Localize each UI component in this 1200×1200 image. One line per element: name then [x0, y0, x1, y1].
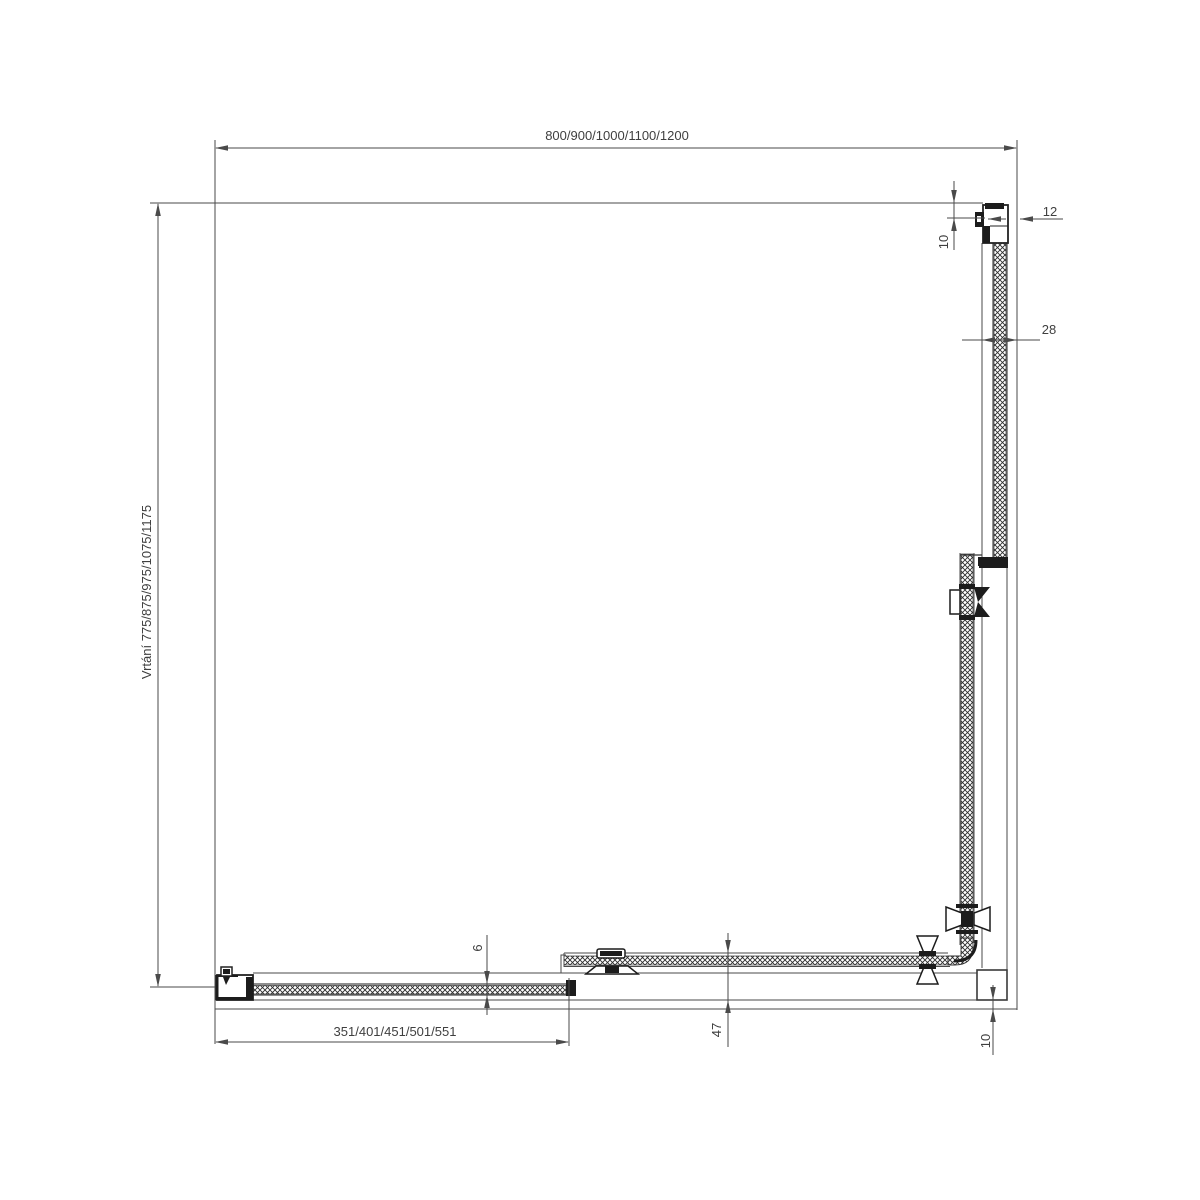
wall-profile-top-right: [975, 203, 1008, 243]
dimension-arrows: [155, 145, 1033, 1045]
door-top-bracket: [978, 557, 1008, 566]
fixed-glass-right: [994, 240, 1006, 564]
enclosure-outline: [150, 140, 1017, 1044]
dimension-lines: [150, 148, 1063, 1055]
dim-bottom-fixed-label: 351/401/451/501/551: [295, 1024, 495, 1040]
profile-right-bar: [246, 977, 253, 999]
dim-glass-thickness-label: 6: [470, 933, 486, 963]
profile-inner-block: [983, 226, 990, 243]
technical-drawing-canvas: 800/900/1000/1100/1200 Vrtání 775/875/97…: [0, 0, 1200, 1200]
door-glass-vertical: [961, 554, 973, 940]
dim-top-width-label: 800/900/1000/1100/1200: [467, 128, 767, 144]
fixed-panel-bottom: [253, 980, 576, 996]
sliding-door-horizontal: [564, 938, 976, 967]
dim-profile-depth-label: 12: [1035, 204, 1065, 220]
fixed-glass-bottom: [253, 986, 566, 995]
dim-door-edge-label: 47: [709, 1015, 725, 1045]
drawing-linework: [0, 0, 1200, 1200]
dim-panel-width-label: 28: [1034, 322, 1064, 338]
dim-top-offset-label: 10: [936, 227, 952, 257]
profile-serration: [985, 203, 1004, 209]
dim-bottom-offset-label: 10: [978, 1026, 994, 1056]
fixed-panel-right: [979, 238, 1008, 568]
corner-block: [977, 970, 1007, 1000]
wall-profile-bottom-left: [216, 967, 253, 1000]
dim-left-drilling-label: Vrtání 775/875/975/1075/1175: [139, 472, 155, 712]
fixed-glass-end-cap: [566, 980, 576, 996]
